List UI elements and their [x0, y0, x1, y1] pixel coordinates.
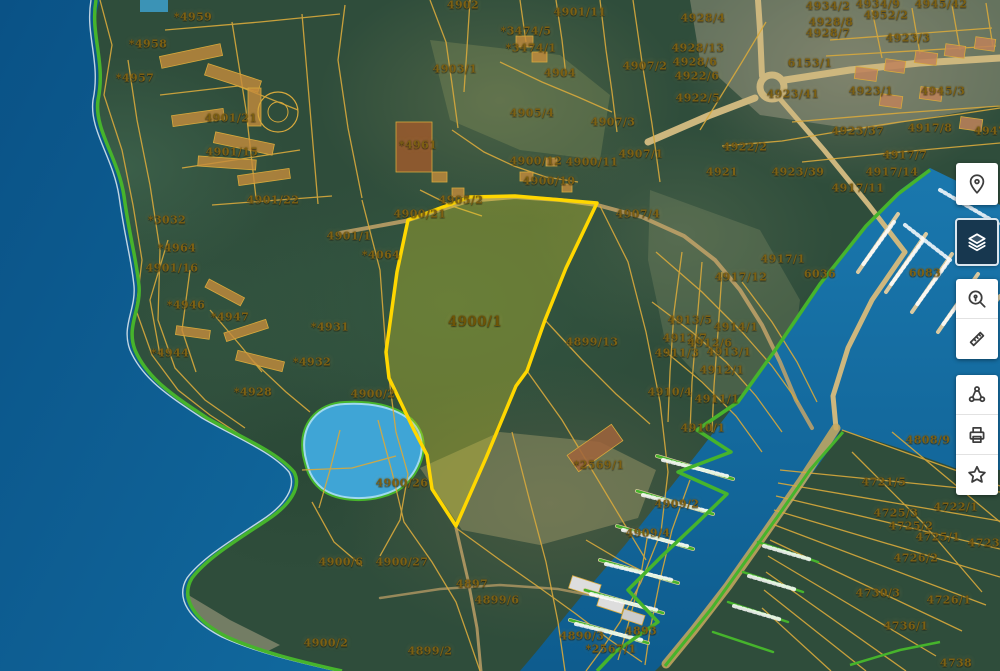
star-icon	[966, 464, 988, 486]
toolbar-button-layers[interactable]	[956, 219, 998, 265]
search-location-icon	[966, 288, 988, 310]
toolbar-group-tools	[956, 279, 998, 359]
printer-icon	[966, 424, 988, 446]
map-artwork	[0, 0, 1000, 671]
toolbar-group-output	[956, 375, 998, 495]
toolbar-button-share[interactable]	[956, 375, 998, 415]
toolbar-button-print[interactable]	[956, 415, 998, 455]
toolbar-button-location-pin[interactable]	[956, 163, 998, 205]
toolbar-button-measure[interactable]	[956, 319, 998, 359]
map-pin-icon	[966, 173, 988, 195]
toolbar-button-search-location[interactable]	[956, 279, 998, 319]
map-toolbar	[956, 163, 998, 511]
layers-icon	[966, 231, 988, 253]
toolbar-button-favorites[interactable]	[956, 455, 998, 495]
map-canvas[interactable]: *4959*4958*49574901/214901/154901/22*303…	[0, 0, 1000, 671]
ruler-icon	[966, 328, 988, 350]
share-icon	[966, 384, 988, 406]
